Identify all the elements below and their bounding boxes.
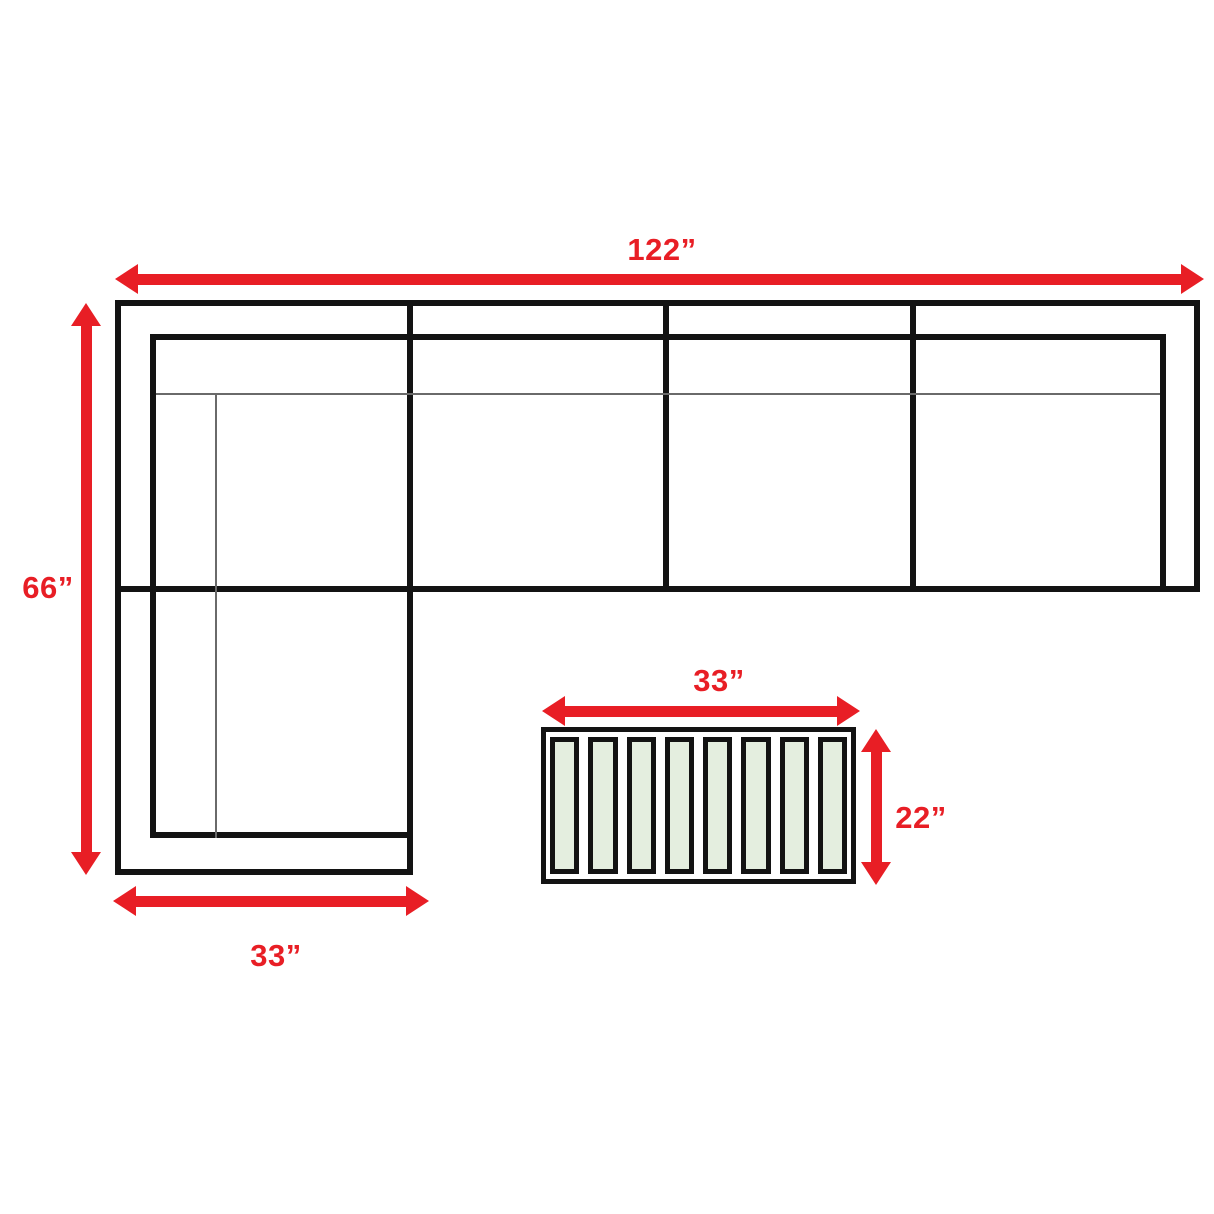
chaise-cushion-thin-line bbox=[215, 393, 217, 838]
table-width-label: 33” bbox=[693, 663, 744, 699]
table-slat bbox=[818, 737, 847, 874]
table-slat bbox=[665, 737, 694, 874]
arrow-left-icon bbox=[115, 264, 138, 294]
table-slat bbox=[703, 737, 732, 874]
seat-divider-2 bbox=[663, 300, 669, 592]
arrow-down-icon bbox=[861, 862, 891, 885]
table-slat bbox=[627, 737, 656, 874]
arrow-right-icon bbox=[837, 696, 860, 726]
table-slat bbox=[780, 737, 809, 874]
arrow-down-icon bbox=[71, 852, 101, 875]
chaise-width-label: 33” bbox=[250, 938, 301, 974]
chaise-outline bbox=[115, 300, 413, 875]
table-width-arrow bbox=[542, 696, 860, 726]
sofa-depth-arrow bbox=[71, 303, 101, 875]
table-slat bbox=[550, 737, 579, 874]
sofa-depth-label: 66” bbox=[22, 570, 73, 606]
table-slat bbox=[588, 737, 617, 874]
arrow-up-icon bbox=[71, 303, 101, 326]
chaise-width-arrow bbox=[113, 886, 429, 916]
chaise-inner-bottom-line bbox=[150, 832, 413, 838]
table-slat bbox=[741, 737, 770, 874]
backrest-inner-right-line bbox=[1160, 334, 1166, 592]
arrow-up-icon bbox=[861, 729, 891, 752]
sofa-width-arrow bbox=[115, 264, 1204, 294]
arrow-right-icon bbox=[406, 886, 429, 916]
coffee-table bbox=[541, 727, 856, 884]
sofa-width-label: 122” bbox=[627, 232, 696, 268]
seat-divider-3 bbox=[910, 300, 916, 592]
backrest-inner-top-line bbox=[150, 334, 1166, 340]
arrow-left-icon bbox=[113, 886, 136, 916]
seat-front-thin-line bbox=[156, 393, 1160, 395]
backrest-inner-left-line bbox=[150, 334, 156, 838]
table-depth-arrow bbox=[861, 729, 891, 885]
table-depth-label: 22” bbox=[895, 800, 946, 836]
arrow-right-icon bbox=[1181, 264, 1204, 294]
dimension-diagram: 122” 66” 33” 33” 22” bbox=[0, 0, 1214, 1214]
arrow-left-icon bbox=[542, 696, 565, 726]
